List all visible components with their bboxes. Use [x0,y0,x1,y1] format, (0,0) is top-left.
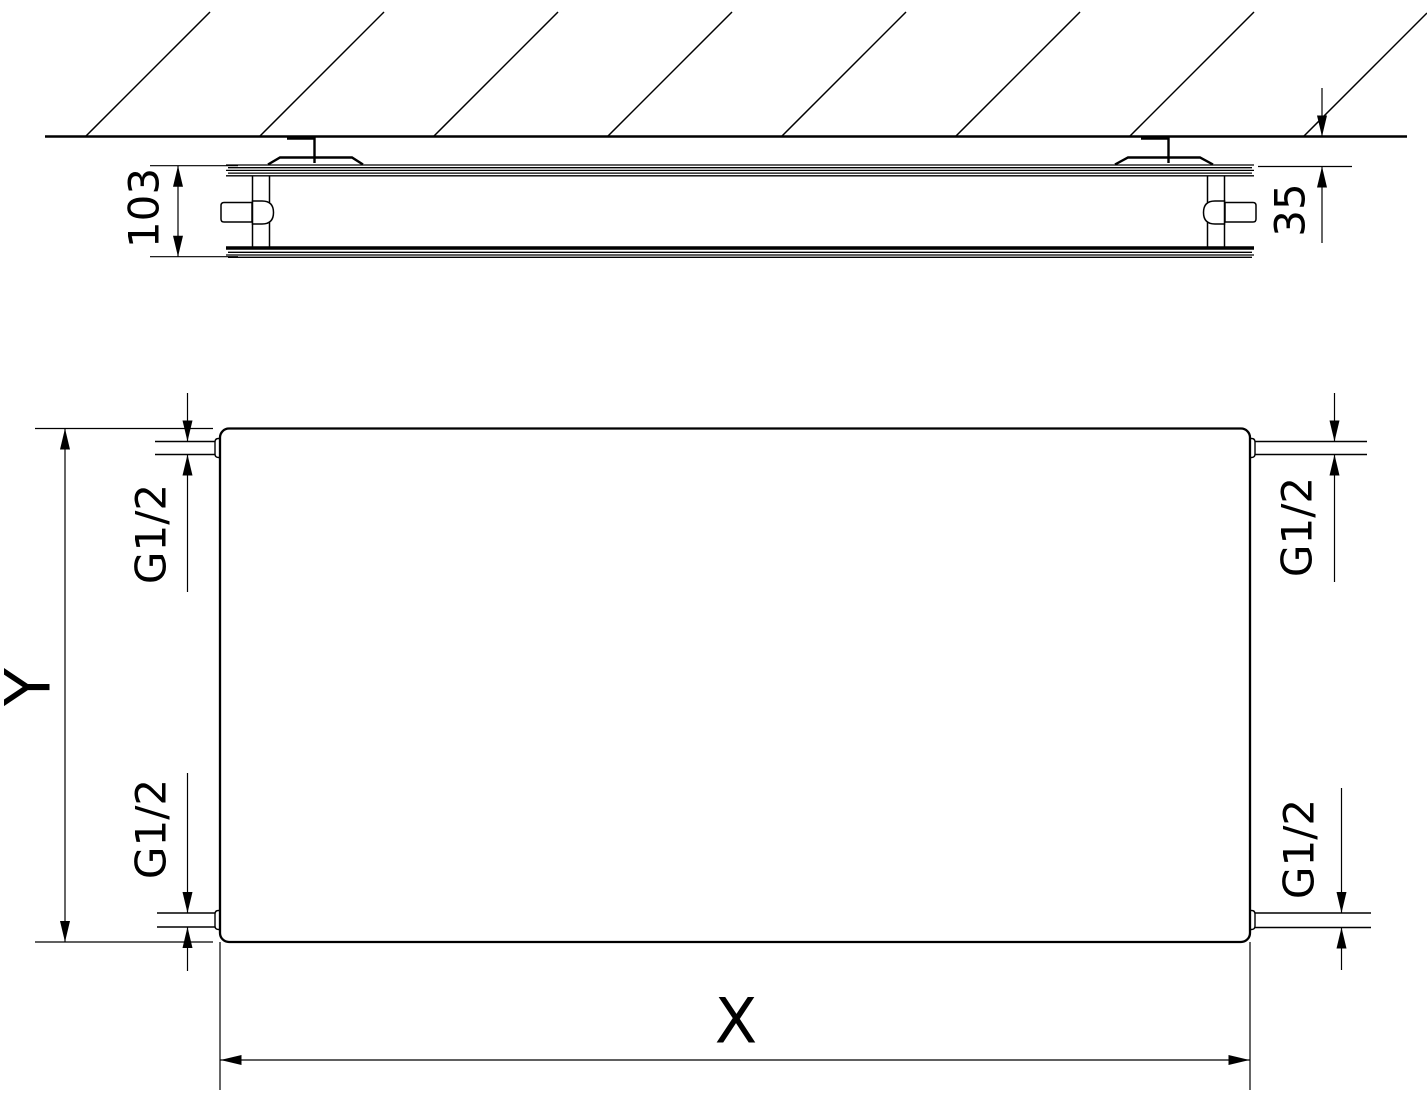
left-wall-bracket [268,139,363,165]
height-dimension-label: Y [0,668,65,707]
dimension-connection-bottom-left: G1/2 [127,773,193,971]
plan-left-connection-stub [221,201,274,224]
connection-thread-label: G1/2 [1273,477,1322,577]
dimension-connection-bottom-right: G1/2 [1275,788,1347,970]
bracket-arm [1141,139,1169,164]
radiator-panel-front [220,429,1250,943]
dimension-depth: 103 [120,166,239,257]
arrowhead-up [1330,455,1340,476]
hatch-line [260,12,384,136]
radiator-front-view [155,429,1371,943]
plan-right-connection-stub [1204,201,1257,224]
plan-back-panel [226,165,1254,176]
dimension-wall-distance: 35 [1258,88,1352,243]
front-stub-bottom-right [1249,911,1371,930]
wall-distance-dimension-label: 35 [1266,183,1315,236]
hatch-line [434,12,558,136]
radiator-dimension-drawing: 103 35 [0,0,1427,1101]
arrowhead-down [60,921,70,942]
arrowhead-down [183,892,193,913]
hatch-line [956,12,1080,136]
connection-thread-label: G1/2 [127,484,176,584]
dimension-height: Y [0,429,213,943]
hatch-line [608,12,732,136]
hatch-line [782,12,906,136]
dimension-width: X [220,942,1250,1090]
arrowhead-left [221,1055,242,1065]
arrowhead-down [1337,892,1347,913]
dimension-connection-top-right: G1/2 [1273,393,1340,582]
dimension-connection-top-left: G1/2 [127,393,193,592]
connection-flange [253,201,274,224]
arrowhead-up [183,455,193,476]
arrowhead-up [60,429,70,450]
arrowhead-down [183,421,193,442]
hatch-line [86,12,210,136]
depth-dimension-label: 103 [120,168,169,248]
bracket-arm [287,139,315,164]
bracket-clip [1115,158,1213,165]
right-wall-bracket [1115,139,1213,165]
wall-section [45,12,1427,137]
connection-flange [1204,201,1225,224]
arrowhead-down [173,236,183,257]
connection-thread-label: G1/2 [1275,799,1324,899]
arrowhead-up [1337,928,1347,949]
wall-hatch-lines [86,12,1427,136]
arrowhead-down [1330,421,1340,442]
front-stub-top-right [1249,439,1367,458]
connection-stub [221,203,252,223]
hatch-line [1130,12,1254,136]
technical-drawing: 103 35 [0,0,1427,1101]
arrowhead-down [1317,116,1327,137]
connection-stub [1225,203,1256,223]
arrowhead-up [1317,167,1327,188]
arrowhead-up [183,927,193,948]
width-dimension-label: X [715,985,757,1058]
arrowhead-up [173,166,183,187]
arrowhead-right [1229,1055,1250,1065]
front-stub-bottom-left [157,911,221,930]
connection-thread-label: G1/2 [127,779,176,879]
radiator-plan-view [221,139,1256,258]
plan-front-panel [226,248,1254,257]
